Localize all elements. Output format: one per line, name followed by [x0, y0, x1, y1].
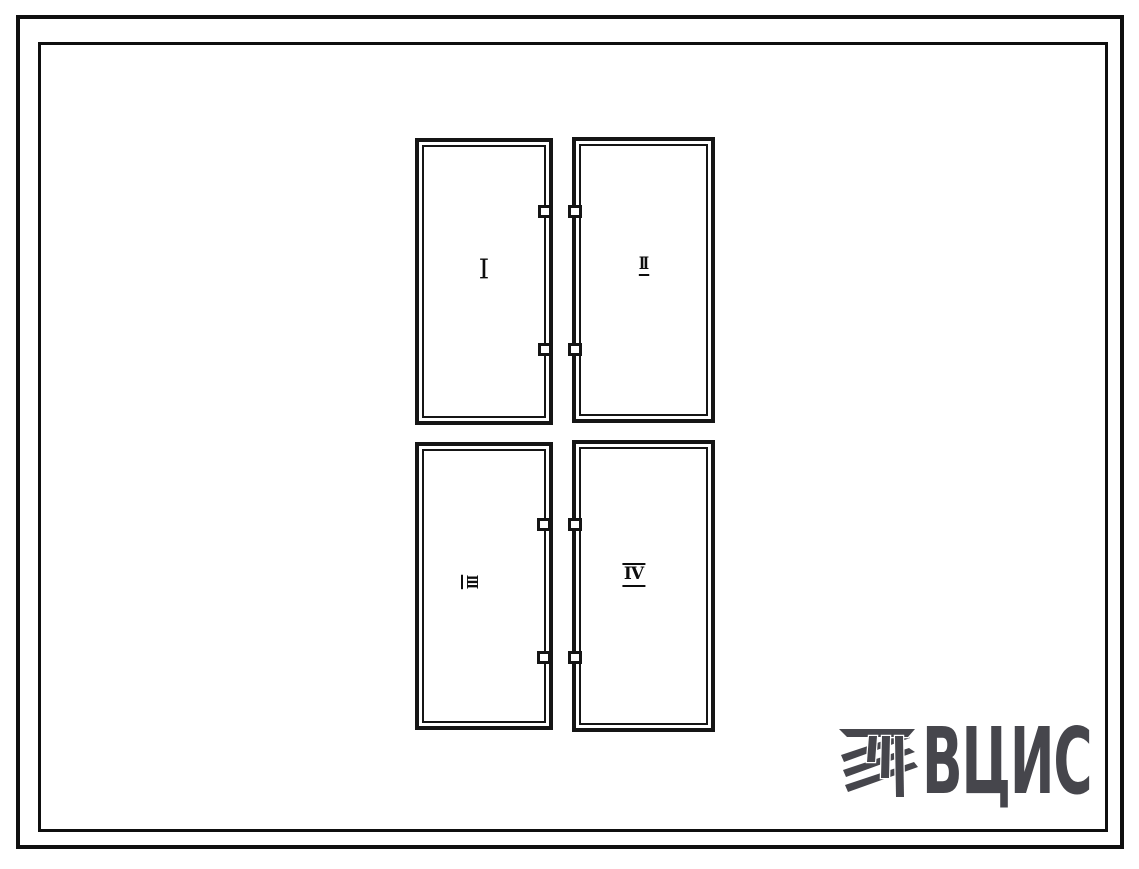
joint-tab	[568, 651, 582, 664]
watermark-logo: ВЦИС	[838, 714, 1088, 814]
panel-2-label: II	[638, 256, 648, 276]
facade-panel-3: III	[415, 442, 553, 730]
joint-tab	[538, 205, 552, 218]
watermark-logo-text: ВЦИС	[922, 714, 1091, 810]
joint-tab	[568, 343, 582, 356]
joint-tab	[568, 205, 582, 218]
panel-3-label: III	[461, 575, 479, 590]
joint-tab	[568, 518, 582, 531]
facade-panel-4: IV	[572, 440, 715, 732]
hatched-monogram-icon	[838, 722, 918, 808]
facade-panel-2: II	[572, 137, 715, 423]
joint-tab	[537, 651, 551, 664]
panel-4-label: IV	[622, 563, 645, 587]
panel-3-inner-line	[422, 449, 546, 723]
joint-tab	[537, 518, 551, 531]
panel-1-label: I	[479, 256, 490, 283]
drawing-sheet: I II III IV	[0, 0, 1139, 869]
joint-tab	[538, 343, 552, 356]
facade-panel-1: I	[415, 138, 553, 425]
panel-2-inner-line	[579, 144, 708, 416]
